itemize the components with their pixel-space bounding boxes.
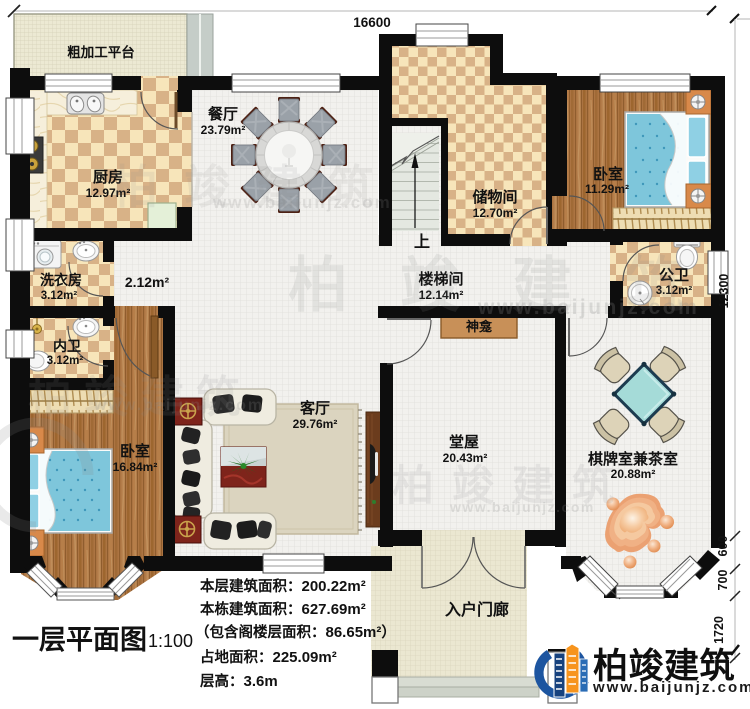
svg-text:储物间: 储物间 (472, 188, 517, 206)
svg-text:内卫: 内卫 (53, 338, 81, 354)
svg-text:粗加工平台: 粗加工平台 (67, 44, 135, 60)
svg-text:上: 上 (414, 233, 430, 251)
svg-text:（包含阁楼层面积：86.65m²）: （包含阁楼层面积：86.65m²） (195, 623, 396, 641)
svg-text:层高：3.6m: 层高：3.6m (200, 672, 278, 690)
svg-text:1:100: 1:100 (148, 631, 193, 651)
svg-text:www.baijunjz.com: www.baijunjz.com (449, 499, 595, 515)
svg-text:11.29m²: 11.29m² (585, 182, 629, 196)
svg-text:600: 600 (716, 536, 730, 557)
svg-text:入户门廊: 入户门廊 (445, 600, 509, 619)
svg-text:堂屋: 堂屋 (449, 433, 479, 451)
svg-text:www.baijunjz.com: www.baijunjz.com (212, 193, 392, 212)
svg-text:卧室: 卧室 (120, 442, 150, 460)
svg-text:一层平面图: 一层平面图 (12, 625, 147, 655)
svg-text:www.baijunjz.com: www.baijunjz.com (93, 397, 264, 414)
svg-text:神龛: 神龛 (466, 319, 493, 334)
svg-text:本层建筑面积：200.22m²: 本层建筑面积：200.22m² (200, 577, 366, 595)
svg-text:占地面积：225.09m²: 占地面积：225.09m² (200, 648, 337, 666)
svg-text:3.12m²: 3.12m² (41, 290, 78, 302)
svg-text:卧室: 卧室 (593, 165, 623, 183)
svg-text:www.baijunjz.com: www.baijunjz.com (477, 296, 699, 319)
svg-text:www.baijunjz.com: www.baijunjz.com (592, 679, 750, 696)
svg-text:2.12m²: 2.12m² (125, 274, 170, 290)
svg-text:1720: 1720 (712, 616, 726, 644)
svg-text:29.76m²: 29.76m² (293, 417, 338, 431)
svg-text:餐厅: 餐厅 (208, 105, 238, 123)
svg-text:16.84m²: 16.84m² (113, 460, 158, 474)
svg-text:客厅: 客厅 (299, 399, 330, 417)
svg-text:本栋建筑面积：627.69m²: 本栋建筑面积：627.69m² (200, 600, 366, 618)
svg-text:3.12m²: 3.12m² (47, 355, 84, 367)
svg-text:12.70m²: 12.70m² (473, 206, 518, 220)
svg-text:700: 700 (716, 570, 730, 591)
svg-text:洗衣房: 洗衣房 (40, 272, 82, 288)
svg-text:23.79m²: 23.79m² (201, 123, 246, 137)
svg-text:16600: 16600 (353, 15, 391, 30)
